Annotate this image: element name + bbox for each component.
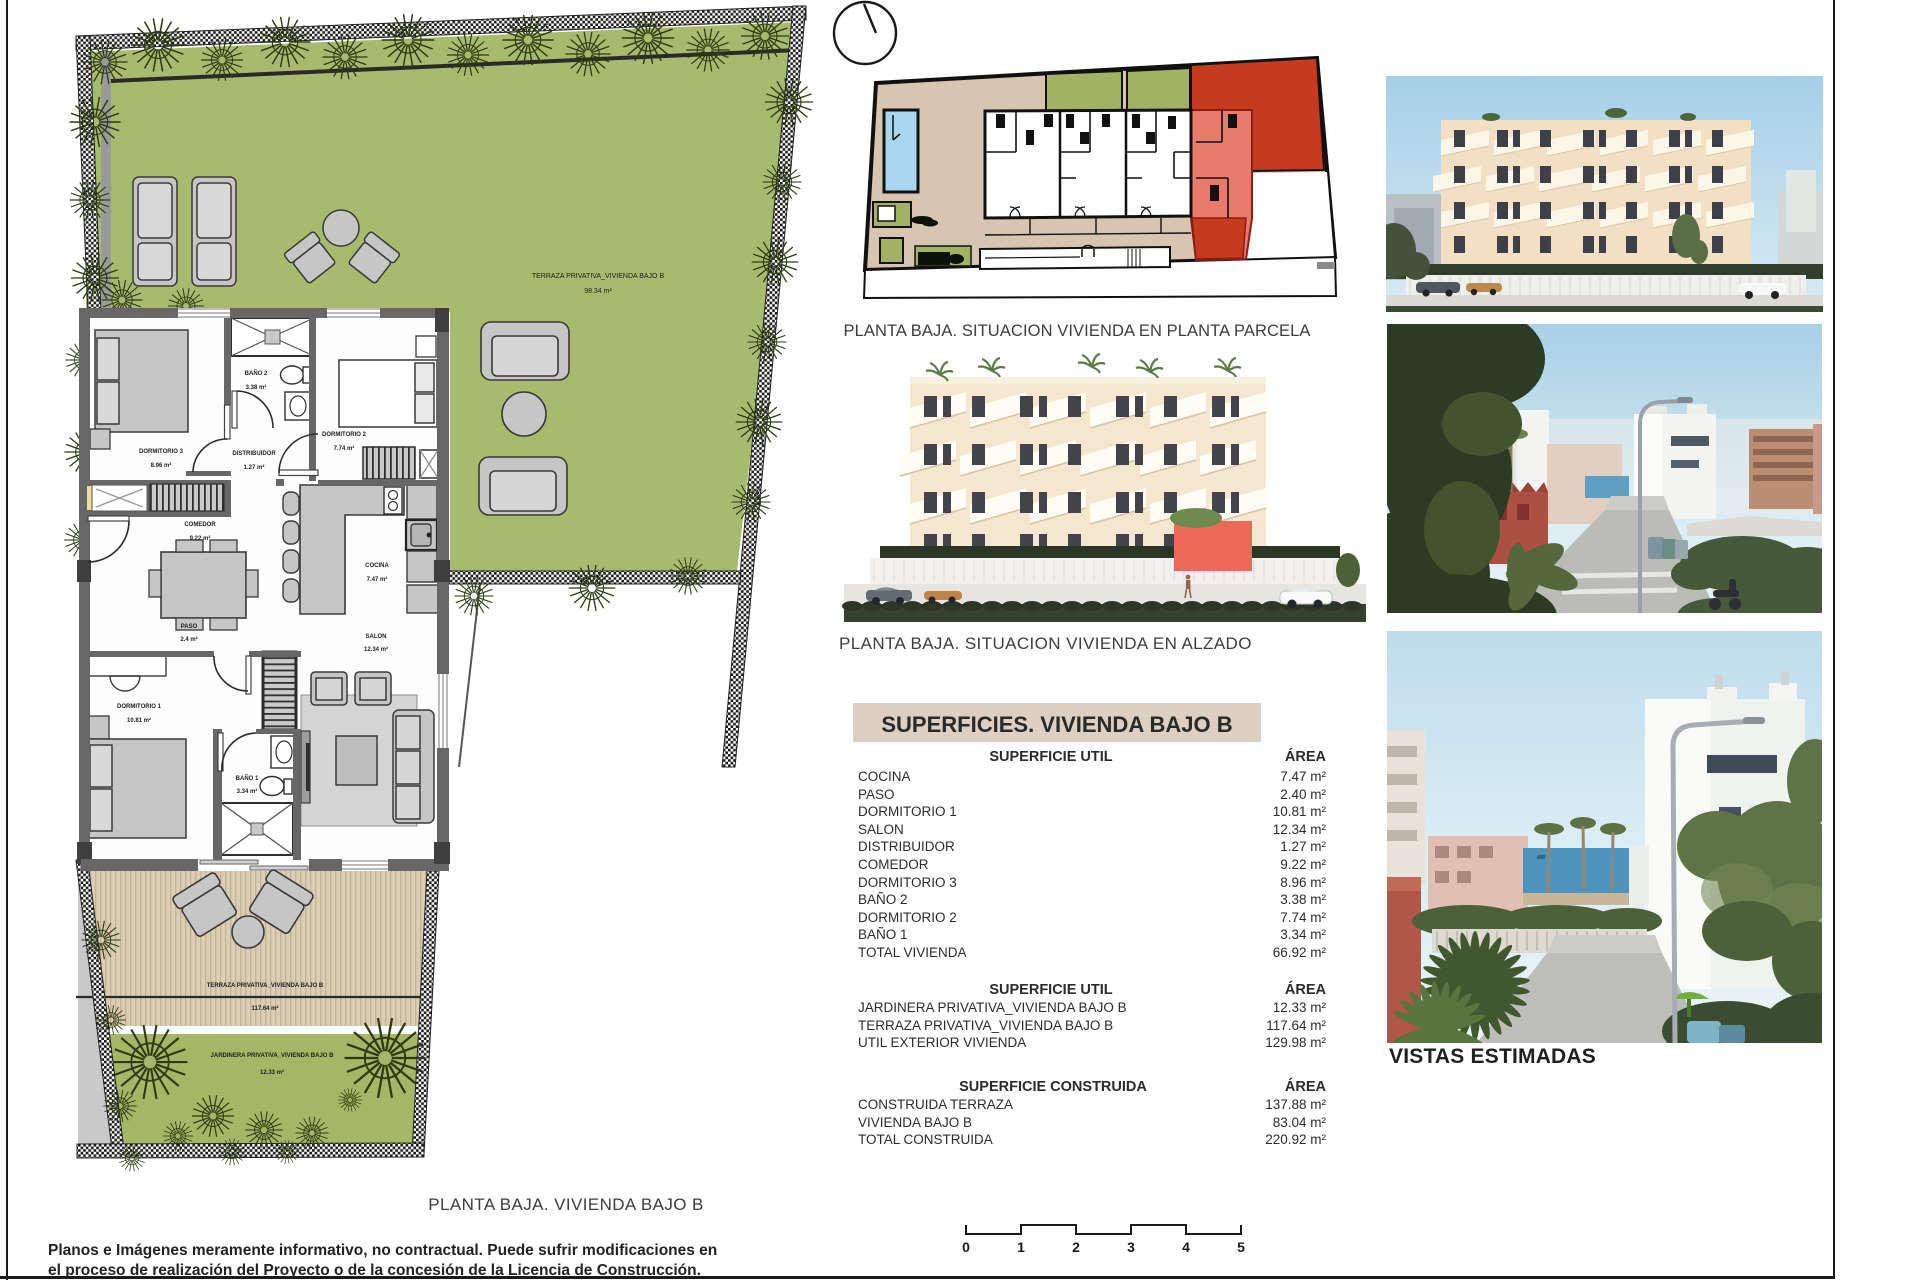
svg-text:TERRAZA PRIVATIVA_VIVIENDA BAJ: TERRAZA PRIVATIVA_VIVIENDA BAJO B [532, 273, 665, 280]
svg-text:3.34 m²: 3.34 m² [237, 788, 258, 795]
svg-text:PASO: PASO [181, 624, 198, 630]
svg-text:TERRAZA PRIVATIVA_VIVIENDA BAJ: TERRAZA PRIVATIVA_VIVIENDA BAJO B [207, 983, 324, 989]
svg-text:BAÑO 1: BAÑO 1 [236, 775, 259, 782]
svg-text:BAÑO 2: BAÑO 2 [245, 370, 268, 377]
svg-text:DORMITORIO 3: DORMITORIO 3 [139, 449, 184, 455]
svg-text:2.4 m²: 2.4 m² [180, 636, 197, 643]
svg-text:0: 0 [962, 1239, 970, 1255]
svg-text:DORMITORIO 2: DORMITORIO 2 [322, 432, 367, 438]
svg-text:5: 5 [1237, 1239, 1245, 1255]
svg-text:3: 3 [1127, 1239, 1135, 1255]
svg-text:8.96 m²: 8.96 m² [151, 462, 172, 469]
svg-text:3.38 m²: 3.38 m² [246, 384, 267, 391]
svg-text:117.64 m²: 117.64 m² [251, 1005, 278, 1012]
svg-text:7.74 m²: 7.74 m² [334, 445, 355, 452]
svg-text:4: 4 [1182, 1239, 1190, 1255]
svg-text:10.81 m²: 10.81 m² [127, 717, 151, 724]
svg-text:DISTRIBUIDOR: DISTRIBUIDOR [232, 451, 276, 457]
svg-text:2: 2 [1072, 1239, 1080, 1255]
svg-text:COMEDOR: COMEDOR [184, 522, 216, 528]
svg-text:SALON: SALON [366, 634, 387, 640]
svg-text:7.47 m²: 7.47 m² [367, 576, 388, 583]
svg-text:COCINA: COCINA [365, 563, 389, 569]
svg-text:98.34 m²: 98.34 m² [584, 288, 612, 295]
svg-text:JARDINERA PRIVATIVA_VIVIENDA B: JARDINERA PRIVATIVA_VIVIENDA BAJO B [211, 1053, 335, 1059]
svg-text:1.27 m²: 1.27 m² [244, 464, 265, 471]
svg-text:12.34 m²: 12.34 m² [364, 646, 388, 653]
svg-text:9.22 m²: 9.22 m² [190, 535, 211, 542]
svg-text:1: 1 [1017, 1239, 1025, 1255]
svg-text:DORMITORIO 1: DORMITORIO 1 [117, 704, 162, 710]
svg-text:12.33 m²: 12.33 m² [260, 1069, 284, 1076]
